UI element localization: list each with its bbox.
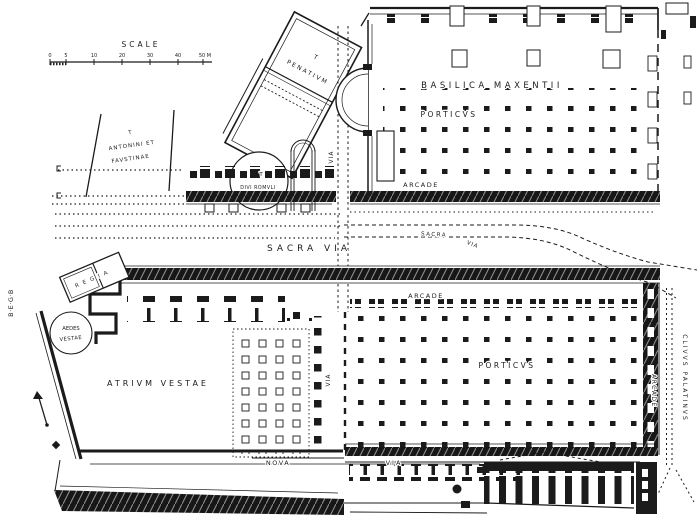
scale-tick: 40 [175, 53, 181, 59]
forum-plan-page: SCALE 0 5 10 20 30 40 50 M BASILICA MAXE… [0, 0, 700, 527]
label-arcade-upper: ARCADE [403, 181, 439, 189]
label-romuli-t: T [258, 172, 263, 178]
atrium-court-grid [239, 332, 309, 454]
label-atrium-vestae: ATRIVM VESTAE [107, 379, 209, 388]
aedes-vestae-circle [50, 312, 92, 354]
atrium-pier-row [127, 296, 285, 322]
lower-porticus-south-wall [345, 447, 658, 456]
scale-title: SCALE [121, 40, 160, 49]
label-romuli: DIVI ROMVLI [240, 185, 275, 191]
scale-tick: 5 [64, 53, 67, 59]
lower-porticus-dot-grid [352, 310, 640, 456]
margin-glyphs: B·E·G·B [7, 289, 15, 317]
scale-tick: 20 [119, 53, 125, 59]
label-via-lower: VIA [325, 374, 332, 387]
label-nova-via: VIA [386, 459, 403, 467]
label-porticus-upper: PORTICVS [420, 110, 477, 119]
label-aedes-1: AEDES [62, 326, 79, 332]
via-corridor-piers [313, 316, 324, 454]
label-arcade-mid: ARCADE [408, 292, 444, 300]
label-via-upper: VIA [328, 151, 335, 164]
scale-tick: 10 [91, 53, 97, 59]
label-basilica-maxentii: BASILICA MAXENTII [421, 81, 563, 91]
label-clivus-palatinus: CLIVVS PALATINVS [681, 334, 688, 422]
label-nova: NOVA [266, 459, 290, 467]
label-sacra-via: SACRA VIA [267, 244, 351, 254]
lower-complex-north-wall [120, 268, 660, 280]
scale-tick: 30 [147, 53, 153, 59]
forum-plan-drawing: SCALE 0 5 10 20 30 40 50 M BASILICA MAXE… [0, 0, 700, 527]
label-porticus-lower: PORTICVS [478, 361, 535, 370]
scale-tick: 0 [48, 53, 51, 59]
basilica-porticus-dot-grid [383, 88, 643, 190]
scale-tick: 50 M [199, 53, 211, 59]
label-arcade-right: ARCADE [650, 374, 657, 408]
